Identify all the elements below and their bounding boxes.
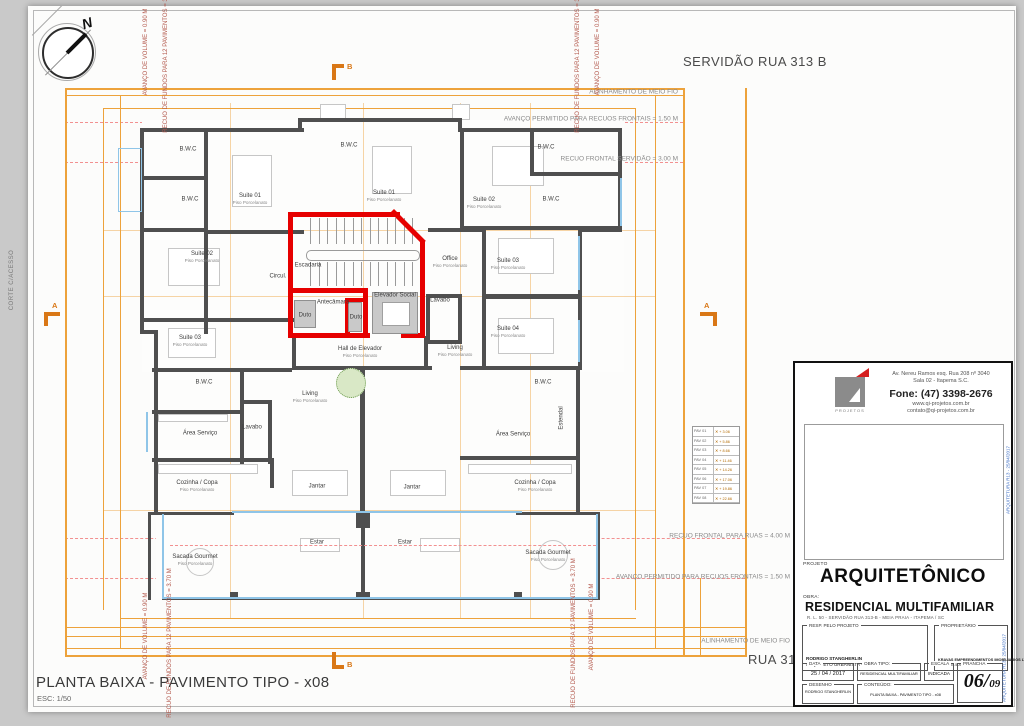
- level-value: ✕ + 11.46: [714, 456, 739, 465]
- vertical-annotation: RECUO DE FUNDOS PARA 12 PAVIMENTOS = 3.7…: [575, 0, 581, 133]
- office-website: www.qi-projetos.com.br: [877, 401, 1005, 408]
- wall: [268, 400, 272, 464]
- furniture: [158, 414, 228, 422]
- glass-line: [620, 178, 622, 226]
- room-sublabel: Piso Porcelanato: [233, 200, 268, 205]
- room-sublabel: Piso Porcelanato: [185, 258, 220, 263]
- dimension-line: [683, 88, 685, 657]
- stair-tread: [412, 262, 413, 286]
- levels-table: PAV 01✕ + 3.06PAV 02✕ + 5.86PAV 03✕ + 8.…: [692, 426, 740, 504]
- dimension-line: [745, 88, 747, 657]
- glass-bay: [118, 148, 142, 212]
- logo-red-flag: [856, 368, 869, 377]
- level-row: PAV 01✕ + 3.06: [693, 427, 739, 437]
- glass-line: [162, 597, 598, 599]
- section-marker-label: B: [347, 660, 352, 669]
- stair-tread: [361, 218, 362, 244]
- desenho-value: RODRIGO STANGHERLIN: [803, 690, 853, 694]
- proprietario-label: PROPRIETÁRIO: [939, 623, 978, 628]
- level-name: PAV 06: [693, 475, 714, 484]
- dimension-line: [120, 618, 636, 619]
- room-label: Circul.: [269, 274, 286, 281]
- wall: [426, 340, 462, 344]
- margin-annotation: AVANÇO PERMITIDO PARA RECUOS FRONTAIS = …: [504, 116, 678, 123]
- wall: [460, 128, 464, 230]
- furniture: [372, 146, 412, 194]
- room-sublabel: Piso Porcelanato: [176, 487, 217, 492]
- fire-core-wall: [288, 288, 368, 293]
- level-value: ✕ + 22.66: [714, 494, 739, 503]
- room-label: Jantar: [404, 485, 421, 492]
- wall: [298, 118, 302, 132]
- fire-core-wall: [363, 288, 368, 338]
- wall: [428, 228, 486, 232]
- margin-annotation: ALINHAMENTO DE MEIO FIO: [589, 89, 678, 96]
- level-value: ✕ + 17.06: [714, 475, 739, 484]
- level-row: PAV 08✕ + 22.66: [693, 494, 739, 504]
- room-label: B.W.C: [534, 380, 551, 387]
- room-sublabel: Piso Porcelanato: [514, 487, 555, 492]
- stair-tread: [310, 218, 311, 244]
- level-name: PAV 04: [693, 456, 714, 465]
- data-value: 25 / 04 / 2017: [803, 671, 853, 677]
- dimension-line: [230, 103, 231, 618]
- stair-tread: [387, 218, 388, 244]
- room-label: Escadaria: [295, 263, 322, 270]
- wall: [460, 456, 578, 460]
- stair-tread: [344, 218, 345, 244]
- room-sublabel: Piso Porcelanato: [173, 342, 208, 347]
- glass-line: [232, 511, 522, 513]
- stair-tread: [378, 218, 379, 244]
- street-label-top: SERVIDÃO RUA 313 B: [683, 54, 827, 69]
- title-block: PROJETOS Av. Nereu Ramos esq. Rua 208 nº…: [793, 361, 1013, 707]
- wall: [292, 366, 432, 370]
- fire-core-wall: [288, 212, 400, 217]
- office-contact-block: Av. Nereu Ramos esq. Rua 208 nº 3040 Sal…: [877, 371, 1005, 416]
- stair-tread: [395, 218, 396, 244]
- room-label: LivingPiso Porcelanato: [438, 345, 473, 357]
- furniture: [158, 464, 258, 474]
- wall: [458, 128, 622, 132]
- resp-projeto-label: RESP. PELO PROJETO: [807, 623, 861, 628]
- obra-tipo-box: OBRA TIPO: RESIDENCIAL MULTIFAMILIAR: [857, 663, 921, 681]
- setback-dashed-line: [170, 545, 596, 546]
- office-phone: Fone: (47) 3398-2676: [877, 388, 1005, 400]
- room-sublabel: Piso Porcelanato: [525, 557, 570, 562]
- stair-tread: [370, 218, 371, 244]
- level-value: ✕ + 8.66: [714, 446, 739, 455]
- dimension-line: [655, 95, 656, 648]
- qi-projetos-logo: PROJETOS: [835, 377, 865, 407]
- room-label: Estendal: [559, 406, 566, 429]
- room-sublabel: Piso Porcelanato: [293, 398, 328, 403]
- vertical-annotation: RECUO DE FUNDOS PARA 12 PAVIMENTOS = 3.7…: [571, 558, 577, 707]
- room-label: Cozinha / CopaPiso Porcelanato: [514, 480, 555, 492]
- wall: [148, 512, 234, 515]
- office-address-line2: Sala 02 - Itapema S.C.: [877, 378, 1005, 385]
- office-address-line1: Av. Nereu Ramos esq. Rua 208 nº 3040: [877, 371, 1005, 378]
- room-label: Estar: [398, 540, 412, 547]
- obra-tipo-value: RESIDENCIAL MULTIFAMILIAR: [858, 671, 920, 676]
- room-label: Suite 01Piso Porcelanato: [233, 193, 268, 205]
- conteudo-box: CONTEÚDO: PLANTA BAIXA - PAVIMENTO TIPO …: [857, 684, 954, 704]
- file-side-note-upper: ARQUITETURA R13 - 25/04/2017: [1006, 446, 1011, 514]
- furniture: [468, 464, 572, 474]
- level-name: PAV 08: [693, 494, 714, 503]
- room-label: B.W.C: [340, 143, 357, 150]
- level-row: PAV 03✕ + 8.66: [693, 446, 739, 456]
- stair-tread: [344, 262, 345, 286]
- office-email: contato@qi-projetos.com.br: [877, 408, 1005, 415]
- wall: [482, 230, 486, 370]
- room-label: Estar: [310, 540, 324, 547]
- room-label: Suite 02Piso Porcelanato: [467, 197, 502, 209]
- room-label: Suite 04Piso Porcelanato: [491, 326, 526, 338]
- level-name: PAV 05: [693, 465, 714, 474]
- north-compass: N: [42, 27, 92, 77]
- stair-tread: [378, 262, 379, 286]
- margin-annotation: AVANÇO PERMITIDO PARA RECUOS FRONTAIS = …: [616, 574, 790, 581]
- conteudo-value: PLANTA BAIXA - PAVIMENTO TIPO - x08: [858, 693, 953, 697]
- section-marker-label: A: [52, 301, 57, 310]
- stair-tread: [387, 262, 388, 286]
- wall: [152, 458, 274, 462]
- wall: [270, 458, 274, 488]
- room-sublabel: Piso Porcelanato: [438, 352, 473, 357]
- plan-title: PLANTA BAIXA - PAVIMENTO TIPO - x08: [36, 674, 330, 691]
- stair-tread: [336, 218, 337, 244]
- level-name: PAV 02: [693, 437, 714, 446]
- room-sublabel: Piso Porcelanato: [338, 353, 382, 358]
- section-marker-bracket: [332, 665, 344, 669]
- margin-annotation: RECUO FRONTAL SERVIDÃO = 3.00 M: [561, 156, 678, 163]
- logo-caption: PROJETOS: [835, 408, 865, 413]
- room-label: Hall de ElevadorPiso Porcelanato: [338, 346, 382, 358]
- room-label: Elevador Social: [374, 293, 416, 300]
- level-row: PAV 06✕ + 17.06: [693, 475, 739, 485]
- wall: [152, 368, 292, 372]
- wall: [424, 336, 428, 368]
- fire-core-wall: [420, 240, 425, 338]
- escala-value: INDICADA: [925, 671, 953, 676]
- wall: [458, 294, 462, 344]
- level-row: PAV 05✕ + 14.26: [693, 465, 739, 475]
- level-row: PAV 04✕ + 11.46: [693, 456, 739, 466]
- wall: [530, 128, 534, 176]
- fire-core-wall: [288, 212, 293, 338]
- level-name: PAV 07: [693, 484, 714, 493]
- furniture: [492, 146, 544, 186]
- stair-tread: [353, 262, 354, 286]
- vertical-annotation: RECUO DE FUNDOS PARA 12 PAVIMENTOS = 3.7…: [167, 568, 173, 717]
- room-label: Lavabo: [430, 298, 450, 305]
- stair-tread: [319, 218, 320, 244]
- level-value: ✕ + 5.86: [714, 437, 739, 446]
- wall: [152, 410, 242, 414]
- stair-tread: [361, 262, 362, 286]
- section-marker-bracket: [332, 64, 336, 80]
- obra-address: R. L. 50 - SERVIDÃO RUA 313-B - MEIA PRA…: [807, 615, 944, 620]
- title-block-header: PROJETOS Av. Nereu Ramos esq. Rua 208 nº…: [795, 363, 1011, 423]
- logo-notch: [849, 388, 860, 402]
- room-sublabel: Piso Porcelanato: [491, 265, 526, 270]
- wall: [576, 366, 580, 514]
- wall: [356, 512, 370, 528]
- room-label: Suite 02Piso Porcelanato: [185, 251, 220, 263]
- vertical-annotation: AVANÇO DE VOLUME = 0.90 M: [143, 9, 149, 96]
- room-label: B.W.C: [537, 145, 554, 152]
- level-value: ✕ + 3.06: [714, 427, 739, 436]
- stair-tread: [327, 218, 328, 244]
- glass-line: [578, 320, 580, 362]
- vertical-annotation: AVANÇO DE VOLUME = 0.90 M: [595, 9, 601, 96]
- wall: [460, 366, 580, 370]
- glass-line: [578, 236, 580, 290]
- room-label: Antecâmara: [317, 300, 349, 307]
- elevator-car: [382, 302, 410, 326]
- level-value: ✕ + 19.86: [714, 484, 739, 493]
- dimension-line: [635, 108, 636, 610]
- room-label: Sacada GourmetPiso Porcelanato: [525, 550, 570, 562]
- room-label: Jantar: [309, 484, 326, 491]
- room-sublabel: Piso Porcelanato: [467, 204, 502, 209]
- desenho-box: DESENHO RODRIGO STANGHERLIN: [802, 684, 854, 704]
- level-name: PAV 03: [693, 446, 714, 455]
- glass-line: [146, 412, 148, 452]
- wall: [292, 336, 296, 368]
- projeto-value: ARQUITETÔNICO: [795, 566, 1011, 588]
- wall: [148, 512, 151, 600]
- room-sublabel: Piso Porcelanato: [172, 561, 217, 566]
- wall: [140, 176, 206, 180]
- scanned-drawing-page: N B.W.CB.W.CSuite 01Piso PorcelanatoB.W.…: [0, 0, 1024, 726]
- obra-tipo-label: OBRA TIPO:: [862, 661, 892, 666]
- prancha-small: 09: [989, 678, 1000, 690]
- room-label: Área Serviço: [183, 431, 217, 438]
- glass-line: [162, 514, 164, 599]
- room-label: Área Serviço: [496, 432, 530, 439]
- room-label: Sacada GourmetPiso Porcelanato: [172, 554, 217, 566]
- room-label: B.W.C: [195, 380, 212, 387]
- level-row: PAV 02✕ + 5.86: [693, 437, 739, 447]
- stair-tread: [353, 218, 354, 244]
- margin-annotation: ALINHAMENTO DE MEIO FIO: [701, 638, 790, 645]
- stair-tread: [404, 262, 405, 286]
- level-value: ✕ + 14.26: [714, 465, 739, 474]
- escala-label: ESCALA: [929, 661, 951, 666]
- vertical-annotation: AVANÇO DE VOLUME = 0.90 M: [589, 584, 595, 671]
- escala-box: ESCALA INDICADA: [924, 663, 954, 681]
- stair-tread: [336, 262, 337, 286]
- data-label: DATA: [807, 661, 823, 666]
- section-marker-label: A: [704, 301, 709, 310]
- plan-scale: ESC: 1/50: [37, 694, 71, 703]
- vertical-annotation: RECUO DE FUNDOS PARA 12 PAVIMENTOS = 3.7…: [163, 0, 169, 133]
- room-label: LivingPiso Porcelanato: [293, 391, 328, 403]
- section-marker-bracket: [713, 312, 717, 326]
- room-sublabel: Piso Porcelanato: [367, 197, 402, 202]
- wall: [484, 294, 578, 299]
- room-label: Suite 01Piso Porcelanato: [367, 190, 402, 202]
- title-block-empty-panel: [804, 424, 1004, 560]
- dimension-line: [65, 88, 67, 657]
- vertical-annotation: AVANÇO DE VOLUME = 0.90 M: [143, 593, 149, 680]
- prancha-number: 06/09: [960, 670, 1004, 693]
- furniture: [390, 470, 446, 496]
- prancha-big: 06/: [964, 670, 990, 692]
- margin-annotation: RECUO FRONTAL PARA RUAS = 4.00 M: [669, 533, 790, 540]
- prancha-box: PRANCHA 06/09: [957, 663, 1003, 703]
- desenho-label: DESENHO: [807, 682, 834, 687]
- stair-handrail: [306, 250, 420, 261]
- wall: [516, 512, 600, 515]
- level-name: PAV 01: [693, 427, 714, 436]
- glass-line: [596, 514, 598, 599]
- room-label: Duto: [299, 313, 312, 320]
- wall: [154, 330, 158, 514]
- sheet-edge-label: CORTE C/ACESSO: [9, 250, 15, 311]
- tree-symbol: [336, 368, 366, 398]
- room-sublabel: Piso Porcelanato: [491, 333, 526, 338]
- stair-tread: [327, 262, 328, 286]
- section-marker-label: B: [347, 62, 352, 71]
- room-sublabel: Piso Porcelanato: [433, 263, 468, 268]
- room-label: Suite 03Piso Porcelanato: [173, 335, 208, 347]
- room-label: Suite 03Piso Porcelanato: [491, 258, 526, 270]
- dimension-line: [103, 108, 635, 109]
- dimension-line: [103, 108, 104, 610]
- room-label: Cozinha / CopaPiso Porcelanato: [176, 480, 217, 492]
- room-label: OfficePiso Porcelanato: [433, 256, 468, 268]
- fire-core-wall: [288, 333, 370, 338]
- room-label: B.W.C: [179, 147, 196, 154]
- stair-tread: [370, 262, 371, 286]
- conteudo-label: CONTEÚDO:: [862, 682, 894, 687]
- room-label: Lavabo: [242, 425, 262, 432]
- wall: [140, 318, 306, 322]
- wall: [300, 118, 462, 122]
- wall: [240, 368, 244, 464]
- data-box: DATA 25 / 04 / 2017: [802, 663, 854, 681]
- wall: [140, 228, 206, 232]
- obra-value: RESIDENCIAL MULTIFAMILIAR: [805, 600, 1005, 614]
- level-row: PAV 07✕ + 19.86: [693, 484, 739, 494]
- wall: [530, 172, 622, 176]
- section-marker-bracket: [44, 312, 48, 326]
- room-label: B.W.C: [181, 197, 198, 204]
- prancha-label: PRANCHA: [961, 661, 987, 666]
- room-label: Duto: [350, 315, 363, 322]
- room-label: B.W.C: [542, 197, 559, 204]
- stair-tread: [395, 262, 396, 286]
- file-side-note-lower: ARQUITETURA R13 - 25/04/2017: [1002, 634, 1007, 702]
